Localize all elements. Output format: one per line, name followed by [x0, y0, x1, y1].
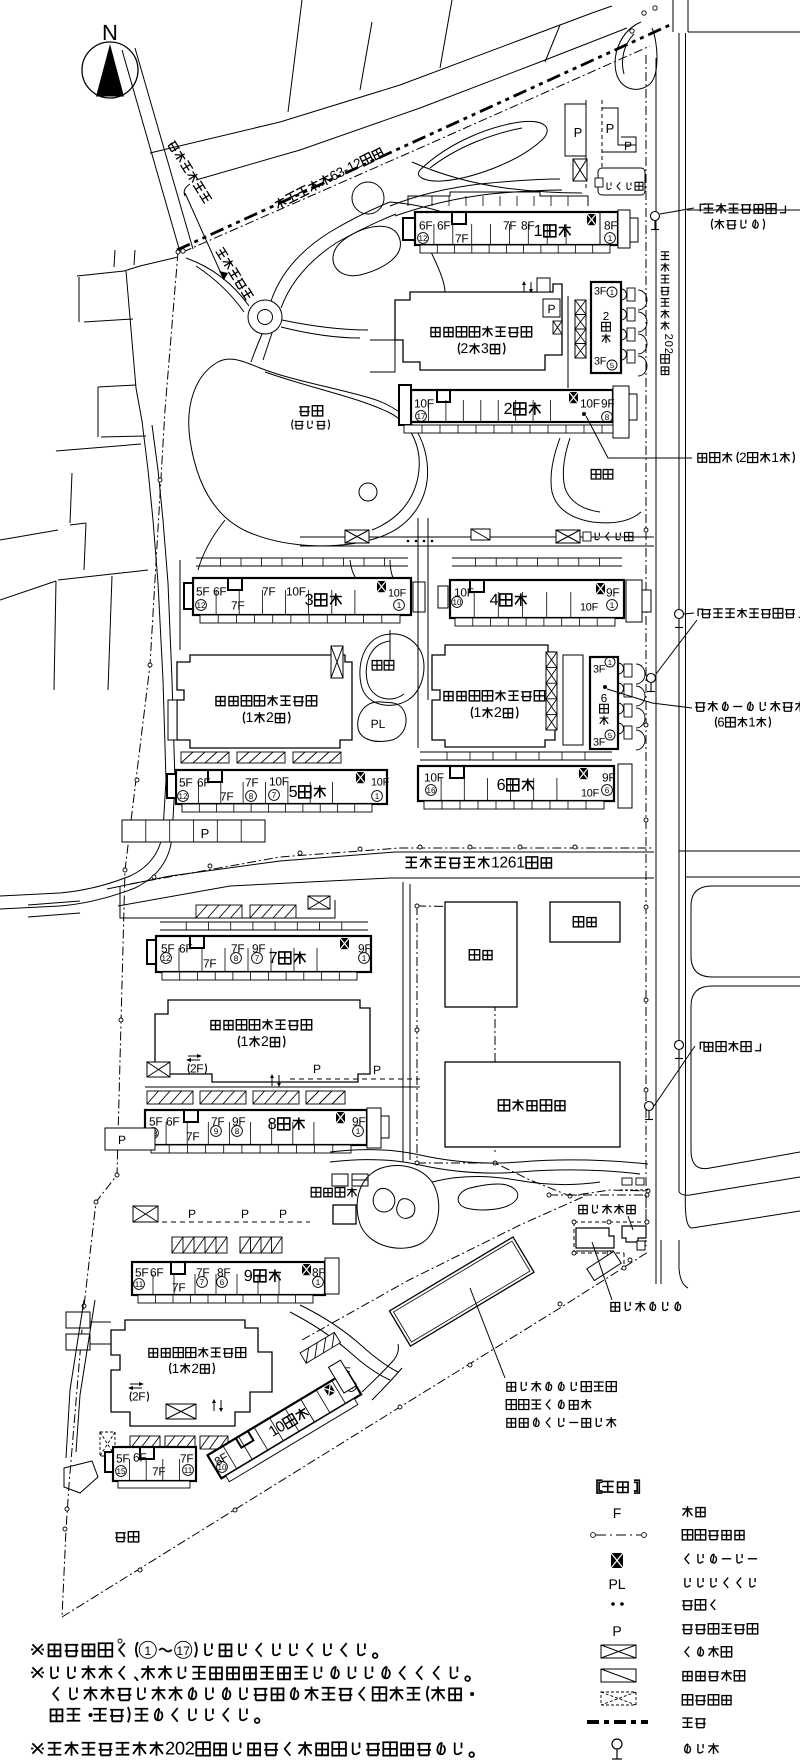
svg-text:F: F: [178, 1281, 185, 1295]
svg-text:F: F: [509, 219, 516, 233]
svg-text:1: 1: [375, 792, 380, 801]
svg-text:F: F: [219, 585, 226, 599]
svg-text:11: 11: [135, 1280, 144, 1289]
svg-text:P: P: [547, 302, 555, 316]
svg-text:1: 1: [241, 1033, 249, 1049]
svg-text:6: 6: [605, 786, 610, 795]
svg-text:12: 12: [161, 954, 171, 963]
svg-text:2: 2: [739, 450, 747, 465]
svg-text:N: N: [102, 20, 118, 45]
svg-text:F: F: [400, 588, 407, 600]
svg-text:F: F: [185, 942, 192, 956]
svg-text:F: F: [383, 777, 390, 789]
svg-text:3: 3: [481, 340, 489, 356]
svg-text:10: 10: [217, 1463, 227, 1472]
svg-text:12: 12: [418, 234, 428, 243]
svg-text:P: P: [606, 121, 615, 136]
svg-text:F: F: [599, 737, 606, 749]
svg-text:F: F: [427, 397, 434, 411]
svg-text:2: 2: [662, 333, 674, 339]
svg-text:1: 1: [172, 1361, 180, 1376]
svg-text:F: F: [192, 1130, 199, 1144]
svg-text:9: 9: [244, 1267, 253, 1285]
svg-text:1: 1: [610, 288, 614, 297]
svg-text:2: 2: [165, 1738, 175, 1759]
svg-text:P: P: [241, 1207, 249, 1221]
svg-text:5: 5: [610, 361, 614, 370]
svg-text:7: 7: [269, 949, 278, 967]
svg-text:1: 1: [474, 704, 482, 720]
svg-text:P: P: [313, 1062, 321, 1076]
svg-text:17: 17: [176, 1644, 190, 1658]
svg-text:P: P: [279, 1207, 287, 1221]
svg-text:2: 2: [266, 709, 274, 725]
svg-text:P: P: [201, 826, 210, 841]
svg-text:F: F: [226, 790, 233, 804]
svg-text:F: F: [600, 356, 607, 368]
svg-text:F: F: [607, 397, 614, 411]
svg-text:F: F: [202, 585, 209, 599]
svg-text:F: F: [443, 219, 450, 233]
svg-text:2: 2: [504, 400, 513, 418]
svg-text:F: F: [592, 602, 599, 614]
svg-text:5: 5: [608, 731, 612, 740]
svg-text:1: 1: [246, 709, 254, 725]
svg-text:12: 12: [196, 601, 206, 610]
svg-text:F: F: [608, 771, 615, 785]
svg-text:P: P: [624, 139, 632, 153]
svg-text:5: 5: [289, 783, 298, 801]
svg-text:6: 6: [601, 692, 607, 705]
svg-text:12: 12: [178, 792, 188, 801]
svg-text:10: 10: [452, 598, 462, 607]
svg-text:F: F: [186, 1452, 193, 1466]
svg-text:F: F: [185, 776, 192, 790]
svg-text:F: F: [600, 286, 607, 298]
svg-text:4: 4: [490, 591, 499, 609]
svg-text:F: F: [425, 219, 432, 233]
svg-text:8: 8: [605, 413, 610, 422]
svg-text:F: F: [158, 1465, 165, 1479]
svg-text:P: P: [373, 1063, 381, 1077]
svg-text:17: 17: [416, 412, 426, 421]
svg-text:8: 8: [234, 954, 239, 963]
svg-text:11: 11: [184, 1466, 193, 1475]
svg-text:3: 3: [305, 591, 314, 609]
svg-text:PL: PL: [608, 1576, 625, 1592]
svg-text:7: 7: [200, 1278, 205, 1287]
svg-text:P: P: [188, 1207, 196, 1221]
svg-text:P: P: [118, 1133, 126, 1147]
svg-text:1: 1: [516, 855, 525, 872]
svg-text:F: F: [203, 776, 210, 790]
svg-text:1: 1: [144, 1644, 151, 1658]
svg-text:F: F: [268, 585, 275, 599]
svg-text:1: 1: [608, 658, 612, 667]
svg-text:2: 2: [191, 1361, 199, 1376]
svg-text:F: F: [122, 1452, 129, 1466]
svg-text:1: 1: [748, 714, 755, 729]
svg-text:F: F: [141, 1266, 148, 1280]
svg-text:F: F: [196, 1062, 203, 1076]
svg-text:F: F: [138, 1390, 145, 1404]
svg-text:F: F: [599, 664, 606, 676]
svg-text:2: 2: [603, 310, 609, 323]
svg-text:1: 1: [610, 601, 615, 610]
svg-text:1: 1: [771, 450, 779, 465]
svg-text:F: F: [593, 397, 600, 411]
svg-text:8: 8: [235, 1127, 240, 1136]
svg-text:1: 1: [362, 954, 367, 963]
svg-text:F: F: [237, 599, 244, 613]
svg-text:F: F: [209, 957, 216, 971]
svg-text:1: 1: [608, 234, 613, 243]
svg-text:9: 9: [214, 1127, 219, 1136]
svg-text:1: 1: [397, 601, 402, 610]
svg-text:F: F: [467, 586, 474, 600]
svg-text:1: 1: [356, 1127, 361, 1136]
svg-text:F: F: [139, 1451, 146, 1465]
svg-text:6: 6: [497, 776, 506, 794]
svg-text:6: 6: [220, 1278, 225, 1287]
svg-text:8: 8: [249, 792, 254, 801]
svg-text:8: 8: [268, 1115, 277, 1133]
svg-text:F: F: [613, 1505, 622, 1521]
svg-text:F: F: [251, 776, 258, 790]
svg-text:7: 7: [272, 791, 277, 800]
svg-text:0: 0: [662, 341, 674, 347]
svg-text:7: 7: [255, 954, 260, 963]
svg-text:2: 2: [494, 704, 502, 720]
svg-text:F: F: [156, 1266, 163, 1280]
svg-text:PL: PL: [371, 717, 386, 731]
svg-text:F: F: [461, 232, 468, 246]
svg-text:15: 15: [116, 1467, 126, 1476]
svg-text:P: P: [612, 1623, 621, 1639]
svg-text:F: F: [437, 771, 444, 785]
svg-text:P: P: [574, 125, 583, 140]
svg-text:16: 16: [426, 786, 436, 795]
svg-text:F: F: [612, 586, 619, 600]
svg-text:F: F: [155, 1115, 162, 1129]
svg-text:0: 0: [175, 1738, 185, 1759]
svg-text:2: 2: [662, 348, 674, 354]
svg-text:1: 1: [316, 1278, 321, 1287]
svg-text:F: F: [610, 219, 617, 233]
svg-text:F: F: [172, 1115, 179, 1129]
svg-text:2: 2: [261, 1033, 269, 1049]
svg-text:1: 1: [534, 222, 543, 240]
svg-text:6: 6: [717, 714, 724, 729]
svg-text:F: F: [593, 788, 600, 800]
svg-text:2: 2: [461, 340, 469, 356]
svg-text:2: 2: [185, 1738, 195, 1759]
